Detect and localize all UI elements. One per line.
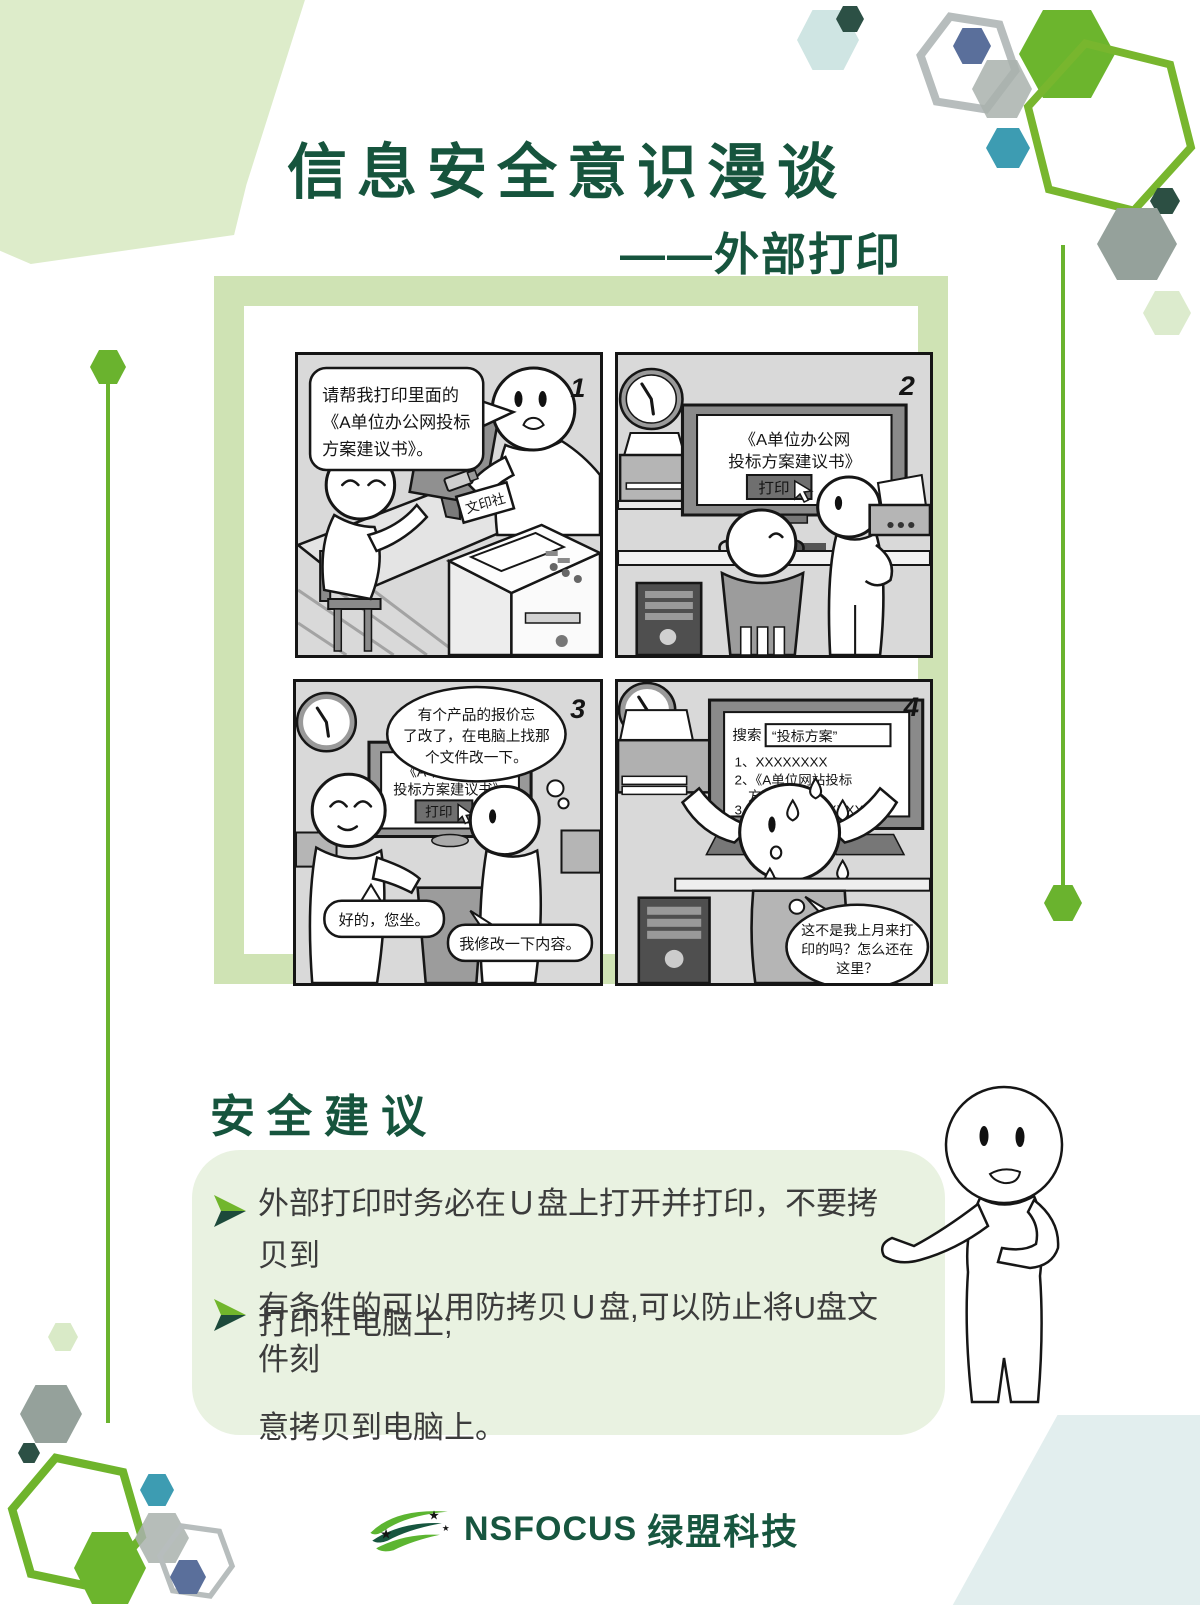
svg-text:印的吗？怎么还在: 印的吗？怎么还在 — [801, 942, 913, 957]
star-icon: ★ — [428, 1508, 439, 1522]
comic-panel-4-art: 搜索 “投标方案” 1、XXXXXXXX 2、《A单位网站投标 方案建议》 3、… — [618, 682, 930, 983]
comic-panel-2: 《A单位办公网 投标方案建议书》 打印 — [615, 352, 933, 658]
desk — [675, 879, 930, 891]
advice-character — [848, 1062, 1088, 1412]
advice-box: 外部打印时务必在Ｕ盘上打开并打印，不要拷贝到 打印社电脑上; 有条件的可以用防拷… — [192, 1150, 945, 1435]
hexagon-decoration — [1044, 885, 1082, 921]
star-icon: ★ — [380, 1527, 392, 1542]
hexagon-decoration — [90, 350, 126, 384]
hexagon-decoration — [20, 1385, 82, 1443]
advice-item: 有条件的可以用防拷贝Ｕ盘,可以防止将U盘文件刻 意拷贝到电脑上。 — [258, 1282, 878, 1454]
svg-text:打印: 打印 — [758, 480, 789, 497]
svg-text:1、XXXXXXXX: 1、XXXXXXXX — [734, 754, 827, 769]
svg-text:搜索: 搜索 — [732, 727, 761, 744]
advice-heading: 安全建议 — [210, 1080, 438, 1145]
page-subtitle: ——外部打印 — [620, 218, 902, 283]
computer-tower — [639, 898, 710, 983]
svg-text:“投标方案”: “投标方案” — [772, 728, 838, 744]
fax-machine — [561, 830, 600, 872]
svg-text:《A单位办公网投标: 《A单位办公网投标 — [322, 413, 470, 432]
line-decoration — [106, 382, 110, 1423]
hexagon-decoration — [48, 1323, 78, 1351]
svg-text:打印: 打印 — [425, 804, 452, 820]
line-decoration — [1061, 245, 1065, 887]
svg-text:有个产品的报价忘: 有个产品的报价忘 — [418, 707, 535, 724]
page-title: 信息安全意识漫谈 — [287, 124, 847, 211]
poster-page: 信息安全意识漫谈 ——外部打印 — [0, 0, 1200, 1605]
comic-panel-1-art: 请帮我打印里面的 《A单位办公网投标 方案建议书》。 文印社 1 — [298, 355, 600, 655]
comic-panel-2-art: 《A单位办公网 投标方案建议书》 打印 — [618, 355, 930, 655]
arrow-bullet-icon — [212, 1194, 248, 1228]
comic-panel-4: 搜索 “投标方案” 1、XXXXXXXX 2、《A单位网站投标 方案建议》 3、… — [615, 679, 933, 986]
seated-person — [720, 510, 804, 655]
panel-number: 2 — [898, 370, 915, 400]
svg-text:好的，您坐。: 好的，您坐。 — [339, 912, 430, 929]
computer-tower — [637, 583, 701, 655]
arrow-bullet-icon — [212, 1298, 248, 1332]
star-icon: ★ — [442, 1523, 450, 1533]
speech-bubble: 请帮我打印里面的 《A单位办公网投标 方案建议书》。 — [310, 368, 513, 470]
fax-machine — [870, 475, 930, 535]
comic-strip-inner: 请帮我打印里面的 《A单位办公网投标 方案建议书》。 文印社 1 — [244, 306, 918, 954]
svg-text:《A单位办公网: 《A单位办公网 — [739, 431, 850, 449]
advice-line: 意拷贝到电脑上。 — [258, 1402, 878, 1454]
panel-number: 3 — [570, 693, 585, 724]
brand-name-cn: 绿盟科技 — [647, 1503, 799, 1555]
svg-text:我修改一下内容。: 我修改一下内容。 — [459, 936, 580, 953]
brand-logo: ★ ★ ★ NSFOCUS绿盟科技 — [366, 1498, 799, 1560]
svg-text:投标方案建议书》: 投标方案建议书》 — [728, 453, 861, 471]
comic-panel-3: 《A单位办公网 投标方案建议书》 打印 — [293, 679, 603, 986]
hexagon-decoration — [950, 1415, 1200, 1605]
nsfocus-swoosh-icon: ★ ★ ★ — [366, 1500, 454, 1558]
svg-text:请帮我打印里面的: 请帮我打印里面的 — [322, 386, 459, 405]
hexagon-decoration — [0, 0, 308, 264]
svg-text:方案建议书》。: 方案建议书》。 — [322, 440, 433, 459]
panel-number: 4 — [902, 692, 919, 722]
svg-text:这不是我上月来打: 这不是我上月来打 — [801, 922, 913, 938]
brand-name-en: NSFOCUS — [464, 1510, 637, 1549]
comic-strip-frame: 请帮我打印里面的 《A单位办公网投标 方案建议书》。 文印社 1 — [214, 276, 948, 984]
clock-icon — [620, 369, 682, 429]
panel-number: 1 — [570, 372, 585, 403]
comic-panel-3-art: 《A单位办公网 投标方案建议书》 打印 — [296, 682, 600, 983]
advice-line: 外部打印时务必在Ｕ盘上打开并打印，不要拷贝到 — [258, 1178, 878, 1282]
svg-text:这里？: 这里？ — [836, 960, 878, 976]
hexagon-decoration — [1143, 291, 1191, 335]
svg-text:了改了，在电脑上找那: 了改了，在电脑上找那 — [403, 728, 550, 745]
svg-text:个文件改一下。: 个文件改一下。 — [425, 749, 528, 766]
comic-panel-1: 请帮我打印里面的 《A单位办公网投标 方案建议书》。 文印社 1 — [295, 352, 603, 658]
clock-icon — [297, 693, 356, 751]
advice-line: 有条件的可以用防拷贝Ｕ盘,可以防止将U盘文件刻 — [258, 1282, 878, 1386]
